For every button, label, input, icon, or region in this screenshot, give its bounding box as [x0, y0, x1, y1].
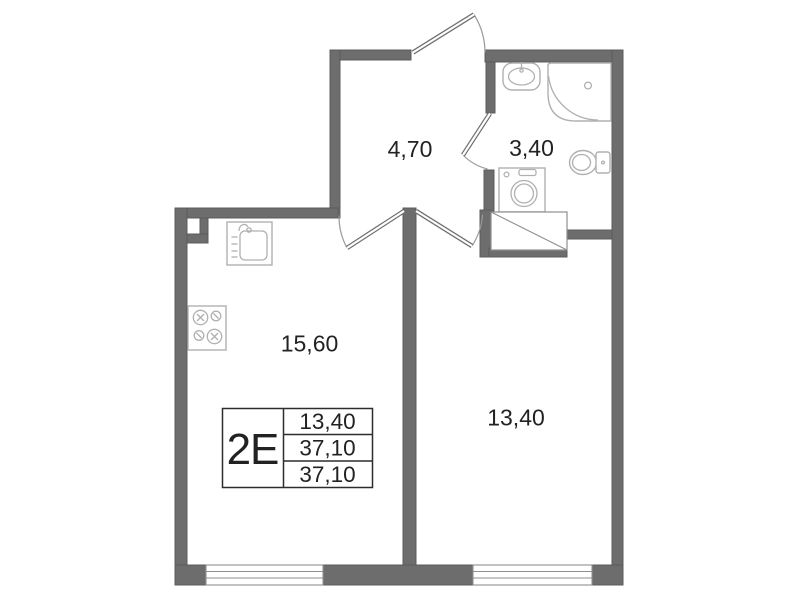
vent-shaft-icon: [491, 212, 567, 250]
wall-bottom-center-pier: [323, 565, 473, 585]
window-bedroom: [473, 565, 592, 585]
wall-bottom-left-pier: [175, 565, 206, 585]
window-kitchen: [206, 565, 323, 585]
wall-hallway-left: [330, 50, 340, 218]
bedroom-area-label: 13,40: [487, 405, 545, 431]
floor-plan-canvas: 4,70 3,40 15,60 13,40 2Е 13,40 37,10 37,…: [0, 0, 799, 600]
window-glass: [206, 565, 323, 585]
bedroom-door-icon: [416, 211, 483, 246]
wall-bottom-right-pier: [592, 565, 623, 585]
wall-kitchen-top: [175, 208, 338, 218]
table-value-2: 37,10: [299, 436, 355, 461]
door-leaf: [413, 15, 474, 53]
wall-left: [175, 208, 187, 585]
shower-tray: [548, 63, 611, 121]
corner-duct: [187, 218, 208, 243]
toilet-icon: [570, 151, 611, 175]
wall-bathroom-left-lower: [484, 170, 494, 212]
unit-info-table: 2Е 13,40 37,10 37,10: [223, 409, 373, 488]
wall-top-bathroom: [485, 50, 623, 62]
floor-plan-drawing: 4,70 3,40 15,60 13,40 2Е 13,40 37,10 37,…: [0, 0, 799, 600]
window-glass: [473, 565, 592, 585]
door-leaf: [463, 114, 490, 156]
kitchen-door-icon: [339, 211, 404, 248]
washer-body: [499, 168, 545, 212]
wall-right: [612, 50, 623, 585]
wall-top-hallway: [330, 50, 411, 60]
hallway-area-label: 4,70: [388, 136, 433, 162]
corner-duct-wall-bottom: [187, 234, 208, 243]
unit-code-label: 2Е: [227, 425, 279, 474]
table-value-1: 13,40: [299, 409, 355, 434]
washing-machine-icon: [499, 168, 545, 212]
bathroom-area-label: 3,40: [509, 135, 554, 161]
wall-partition: [403, 208, 416, 565]
door-swing-arc: [474, 15, 485, 53]
stove-icon: [188, 306, 226, 350]
kitchen-sink-icon: [227, 222, 272, 265]
door-swing-arc: [339, 216, 347, 249]
stove-body: [188, 306, 226, 350]
wall-bathroom-bottom-stub: [565, 230, 612, 239]
wall-bathroom-left-upper: [486, 62, 495, 113]
door-leaf: [347, 211, 404, 248]
door-swing-arc: [463, 155, 488, 169]
kitchen-area-label: 15,60: [281, 331, 339, 357]
toilet-tank: [596, 152, 610, 173]
bathroom-sink-icon: [503, 62, 540, 90]
bathroom-door-icon: [463, 114, 490, 170]
shower-icon: [548, 63, 611, 121]
walls: [175, 50, 623, 585]
door-leaf: [416, 211, 472, 246]
table-value-3: 37,10: [299, 462, 355, 487]
entrance-door-icon: [413, 15, 485, 53]
